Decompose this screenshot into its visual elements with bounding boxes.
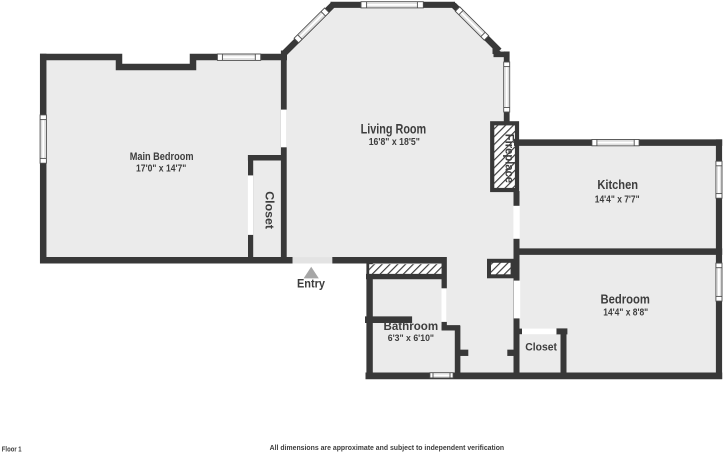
- svg-text:Entry: Entry: [297, 278, 326, 290]
- svg-text:Bedroom: Bedroom: [601, 292, 650, 306]
- svg-text:Main Bedroom: Main Bedroom: [130, 151, 194, 163]
- svg-text:Closet: Closet: [525, 341, 557, 353]
- svg-text:All dimensions are approximate: All dimensions are approximate and subje…: [270, 445, 505, 452]
- svg-text:Floor 1: Floor 1: [2, 444, 22, 453]
- svg-text:6'3" x 6'10": 6'3" x 6'10": [388, 333, 434, 344]
- svg-text:17'0" x 14'7": 17'0" x 14'7": [136, 164, 187, 175]
- svg-text:Bathroom: Bathroom: [384, 321, 439, 333]
- svg-text:Kitchen: Kitchen: [597, 178, 638, 192]
- svg-text:Closet: Closet: [262, 191, 276, 229]
- svg-text:16'8" x 18'5": 16'8" x 18'5": [369, 137, 420, 148]
- svg-text:14'4" x 8'8": 14'4" x 8'8": [603, 308, 648, 319]
- svg-text:Living Room: Living Room: [361, 121, 427, 137]
- svg-text:14'4" x 7'7": 14'4" x 7'7": [595, 194, 640, 205]
- svg-text:Fireplace: Fireplace: [502, 134, 516, 184]
